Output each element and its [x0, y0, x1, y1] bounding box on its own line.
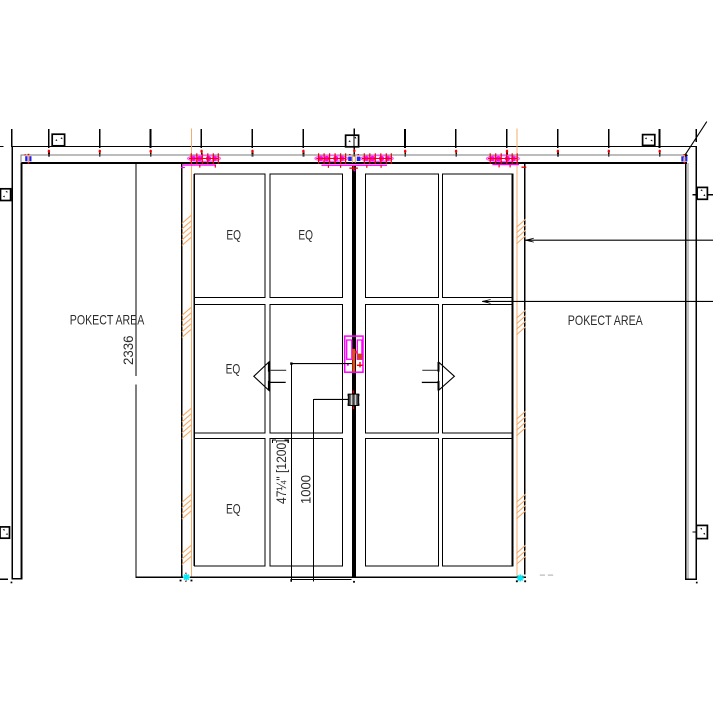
- svg-text:47¼" [1200]: 47¼" [1200]: [274, 440, 289, 505]
- svg-text:EQ: EQ: [226, 501, 241, 517]
- svg-text:EQ: EQ: [298, 226, 313, 242]
- svg-text:1000: 1000: [297, 475, 313, 504]
- svg-text:POKECT AREA: POKECT AREA: [568, 312, 643, 328]
- svg-text:POKECT AREA: POKECT AREA: [70, 311, 145, 327]
- svg-text:EQ: EQ: [226, 226, 241, 242]
- svg-text:EQ: EQ: [226, 361, 241, 377]
- svg-text:2336: 2336: [120, 335, 136, 365]
